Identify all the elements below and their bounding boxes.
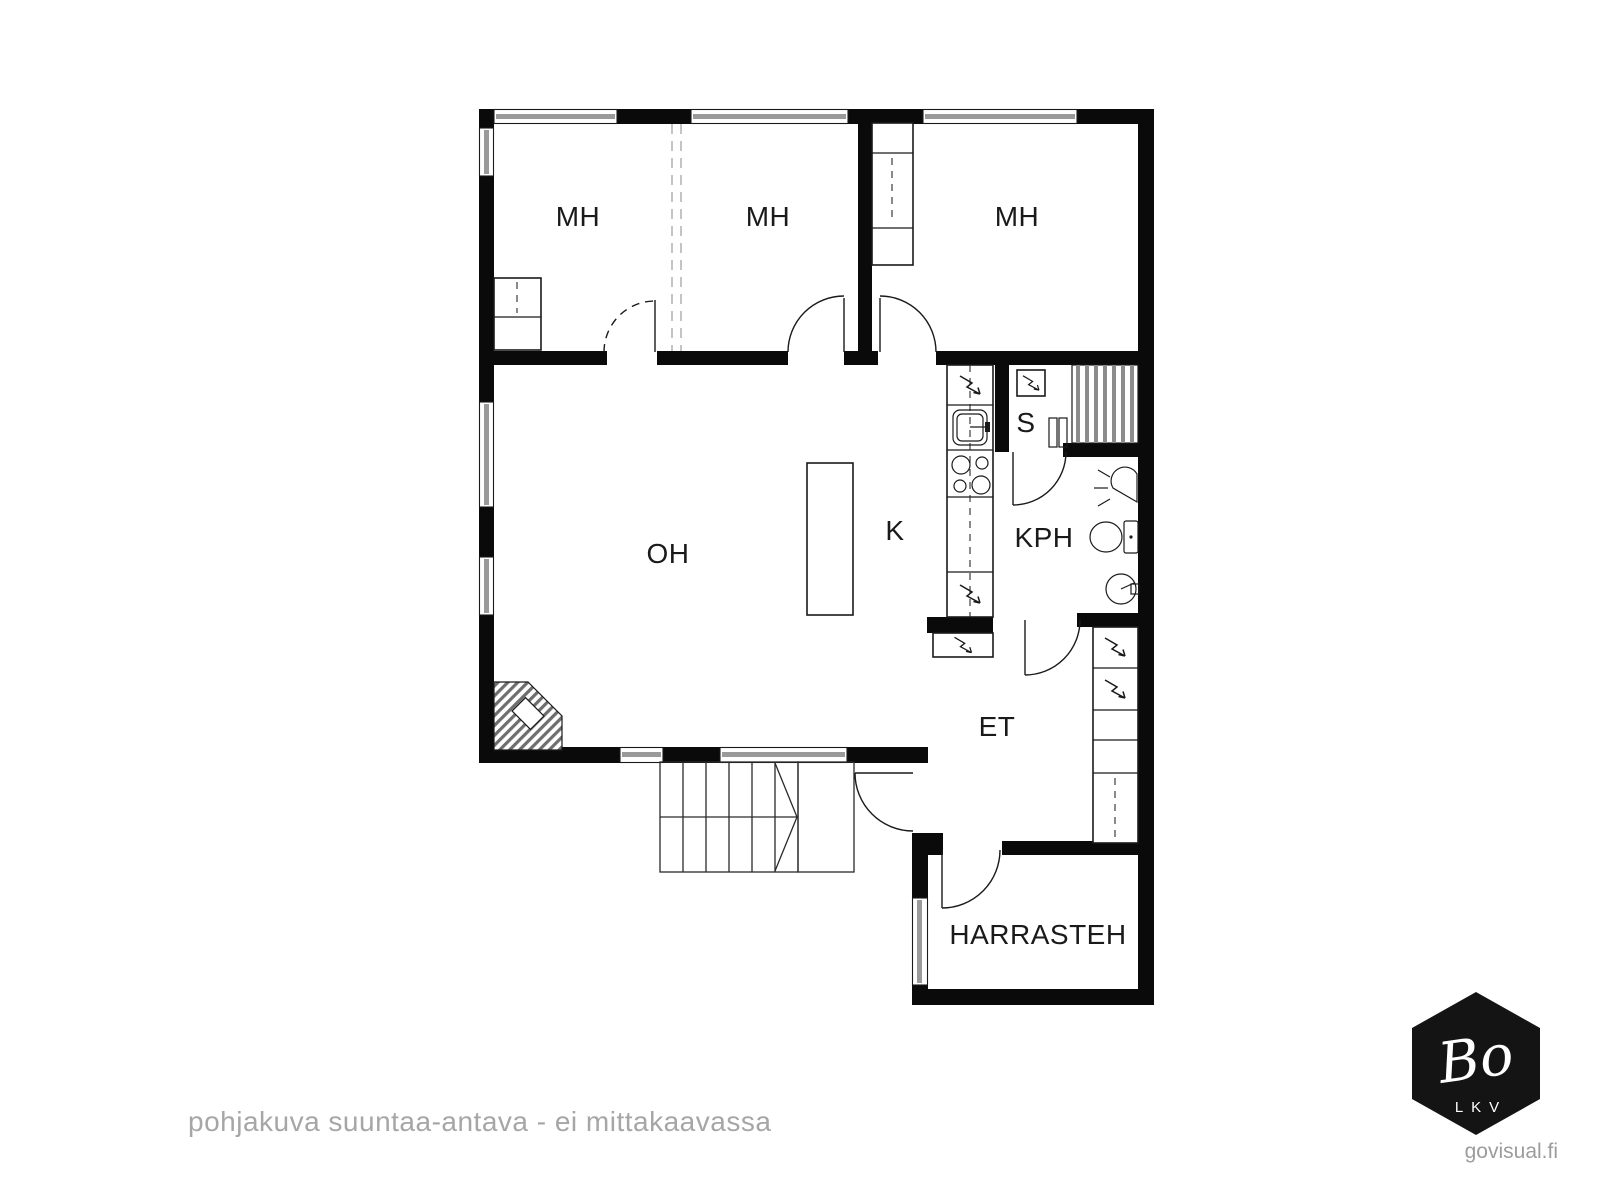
kitchen-counter bbox=[933, 365, 993, 657]
disclaimer-text: pohjakuva suuntaa-antava - ei mittakaava… bbox=[188, 1106, 771, 1137]
floor-plan-drawing: MH MH MH OH K S KPH ET HARRASTEH pohjaku… bbox=[0, 0, 1599, 1200]
removable-partition bbox=[672, 124, 681, 351]
wall-mh2-mh3-divider bbox=[858, 124, 872, 365]
logo-text: Bo bbox=[1433, 1022, 1517, 1097]
sauna-benches bbox=[1072, 365, 1138, 443]
door-arc bbox=[942, 850, 1000, 908]
shower bbox=[1094, 467, 1137, 506]
logo-subtext: LKV bbox=[1455, 1099, 1507, 1116]
room-label-s: S bbox=[1016, 407, 1035, 438]
wall-right bbox=[1138, 109, 1154, 1005]
door-arc bbox=[788, 296, 844, 352]
agency-logo: Bo LKV bbox=[1412, 992, 1540, 1135]
washbasin bbox=[1106, 574, 1139, 604]
fireplace bbox=[494, 682, 562, 750]
wall-harrasteh-bottom bbox=[912, 989, 1154, 1005]
bathroom-fixtures bbox=[1090, 467, 1139, 604]
electrical-symbol bbox=[1017, 370, 1045, 396]
toilet bbox=[1090, 521, 1138, 553]
wall-mh-south-2 bbox=[657, 351, 788, 365]
window bbox=[691, 110, 848, 124]
window bbox=[480, 557, 494, 615]
room-label-mh2: MH bbox=[746, 201, 791, 232]
sauna-stove bbox=[1049, 418, 1067, 447]
room-label-harrasteh: HARRASTEH bbox=[949, 919, 1126, 950]
room-label-mh3: MH bbox=[995, 201, 1040, 232]
wall-et-corner bbox=[912, 833, 943, 855]
door-arc bbox=[1013, 452, 1066, 505]
window bbox=[923, 110, 1077, 124]
window bbox=[913, 898, 928, 985]
wall-kph-south bbox=[1077, 613, 1138, 627]
cabinet-run bbox=[1093, 627, 1138, 843]
floor-plan-page: MH MH MH OH K S KPH ET HARRASTEH pohjaku… bbox=[0, 0, 1599, 1200]
window bbox=[480, 128, 494, 176]
electrical-symbol bbox=[933, 633, 993, 657]
window bbox=[480, 402, 494, 507]
window bbox=[620, 748, 663, 763]
wall-mh-south-1 bbox=[484, 351, 607, 365]
wardrobe bbox=[872, 123, 913, 265]
room-label-k: K bbox=[885, 515, 904, 546]
wall-kitchen-block bbox=[927, 617, 993, 633]
watermark-text: govisual.fi bbox=[1465, 1140, 1558, 1163]
wardrobe bbox=[494, 278, 541, 350]
kitchen-island bbox=[807, 463, 853, 615]
wall-sauna-west bbox=[995, 365, 1009, 452]
door-arc bbox=[880, 296, 936, 352]
wall-sauna-south bbox=[1063, 443, 1138, 457]
door-arc bbox=[604, 300, 655, 352]
door-arc bbox=[855, 773, 913, 831]
stair-landing bbox=[798, 762, 854, 872]
room-label-et: ET bbox=[979, 711, 1016, 742]
stairs bbox=[660, 762, 854, 872]
wall-mh-south-4 bbox=[936, 351, 1138, 365]
window bbox=[494, 110, 617, 124]
window bbox=[720, 748, 847, 763]
room-label-oh: OH bbox=[647, 538, 690, 569]
door-arc bbox=[1025, 620, 1080, 675]
room-label-kph: KPH bbox=[1014, 522, 1073, 553]
room-label-mh1: MH bbox=[556, 201, 601, 232]
